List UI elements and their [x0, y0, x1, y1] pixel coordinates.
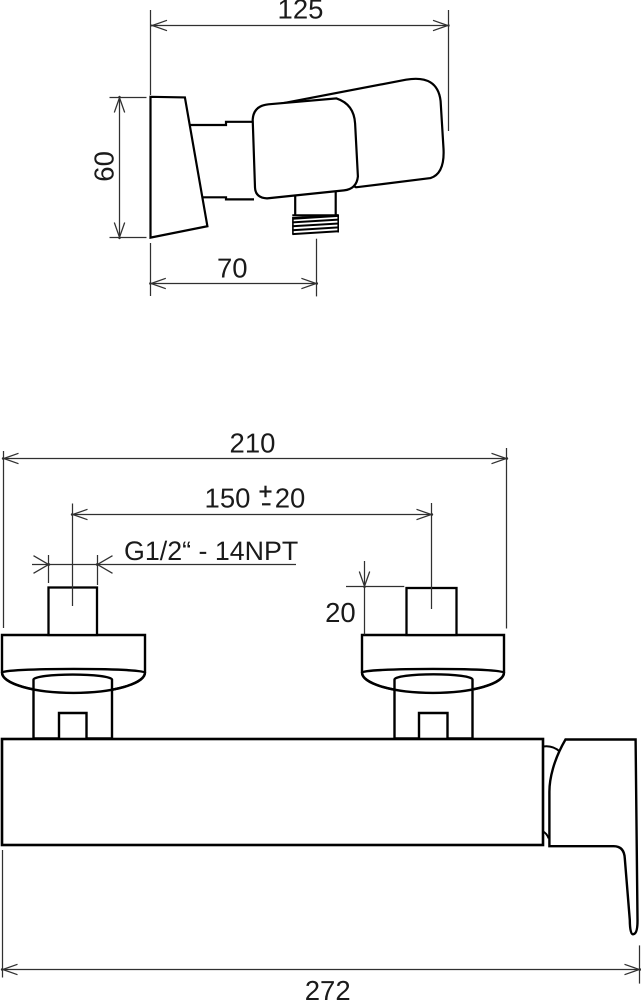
- svg-text:125: 125: [278, 0, 324, 25]
- svg-text:70: 70: [217, 253, 248, 284]
- svg-text:G1/2“ - 14NPT: G1/2“ - 14NPT: [124, 536, 298, 566]
- svg-text:210: 210: [230, 428, 276, 459]
- svg-text:272: 272: [305, 975, 351, 1000]
- svg-text:150: 150: [205, 483, 251, 514]
- svg-text:20: 20: [325, 597, 356, 628]
- svg-text:60: 60: [89, 151, 120, 182]
- svg-text:20: 20: [275, 483, 306, 514]
